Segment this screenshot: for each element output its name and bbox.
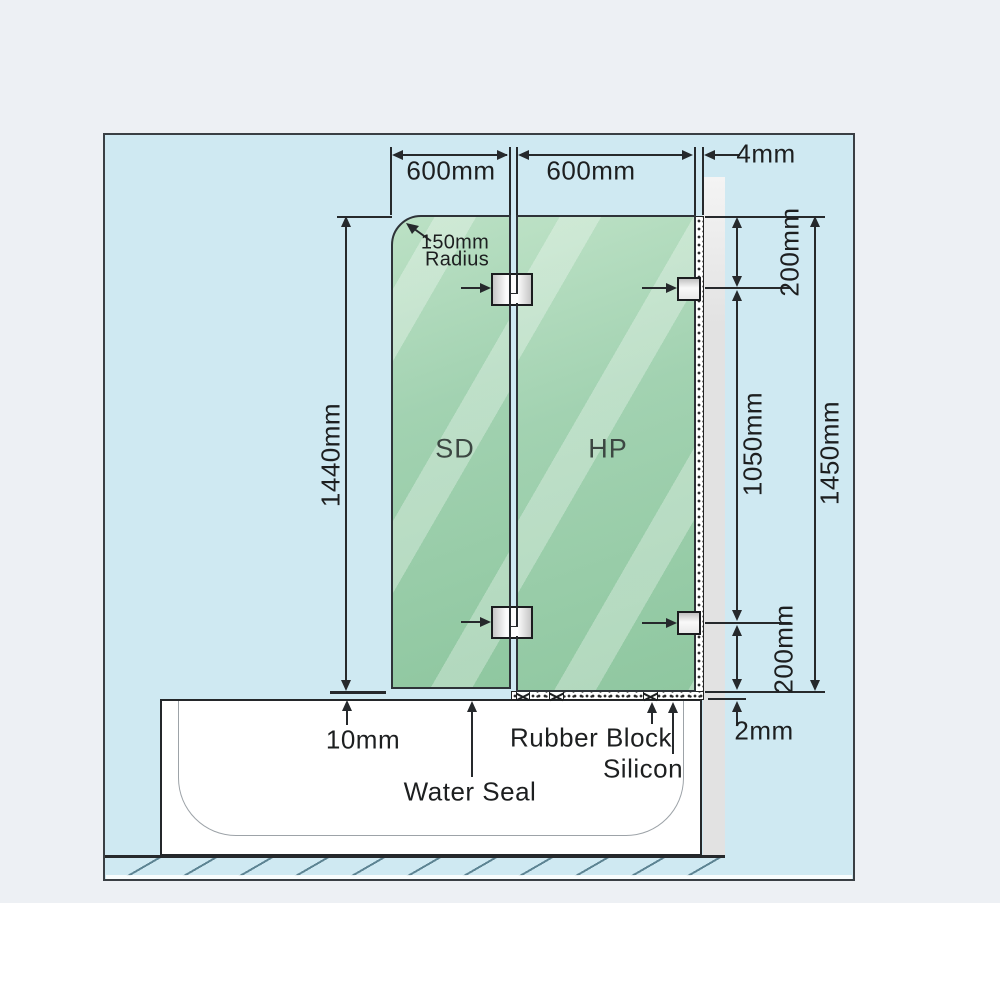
arrow-head xyxy=(732,679,742,690)
extension-line xyxy=(694,147,696,215)
arrow-head xyxy=(518,150,529,160)
label-silicon: Silicon xyxy=(603,754,683,785)
floor-skirt xyxy=(106,875,852,879)
arrow-head xyxy=(732,610,742,621)
arrow-head xyxy=(480,617,491,627)
dim-label-1450: 1450mm xyxy=(815,401,846,505)
arrow-head xyxy=(732,625,742,636)
label-water-seal: Water Seal xyxy=(404,777,537,808)
pointer-line xyxy=(672,711,674,754)
dim-line-200-top xyxy=(736,220,738,280)
wall xyxy=(703,177,725,856)
radius-word-label: Radius xyxy=(425,249,489,272)
dim-label-600-left: 600mm xyxy=(406,156,495,187)
arrow-head xyxy=(810,216,820,227)
panel-label-sd: SD xyxy=(435,434,475,465)
dim-label-10mm: 10mm xyxy=(326,725,400,756)
label-rubber-block: Rubber Block xyxy=(510,723,672,754)
arrow-head xyxy=(666,283,677,293)
arrow-head xyxy=(732,276,742,287)
arrow-head xyxy=(480,283,491,293)
arrow-head xyxy=(666,618,677,628)
hinge-notch xyxy=(511,626,518,636)
extension-line xyxy=(509,147,511,215)
hinge-notch xyxy=(511,293,518,303)
reference-line-top xyxy=(705,216,825,218)
hinge-top xyxy=(491,273,533,306)
arrow-head xyxy=(732,290,742,301)
dim-label-1050: 1050mm xyxy=(738,392,769,496)
hinge-bottom xyxy=(491,606,533,639)
dim-label-4mm: 4mm xyxy=(736,139,795,170)
arrow-head xyxy=(392,150,403,160)
silicon-strip-bottom xyxy=(511,691,704,700)
rubber-block-marker xyxy=(549,691,564,700)
dim-label-2mm: 2mm xyxy=(734,716,793,747)
reference-line-tub-top xyxy=(708,698,746,700)
pointer-line xyxy=(461,621,482,623)
tick-line xyxy=(330,691,386,694)
dim-label-200-bottom: 200mm xyxy=(769,604,800,693)
arrow-head xyxy=(732,217,742,228)
pointer-line xyxy=(346,709,348,725)
rubber-block-marker xyxy=(516,691,530,700)
arrow-head xyxy=(341,216,351,227)
pointer-line xyxy=(461,287,482,289)
shower-screen-diagram: SD HP 600mm 600mm 4mm 150mm Radius xyxy=(0,0,1000,1000)
dim-line-200-bottom xyxy=(736,628,738,684)
wall-bracket-bottom xyxy=(677,611,701,635)
dim-label-600-right: 600mm xyxy=(546,156,635,187)
panel-label-hp: HP xyxy=(588,434,628,465)
arrow-head xyxy=(810,680,820,691)
pointer-line xyxy=(642,622,667,624)
floor-hatch xyxy=(105,858,725,876)
dim-label-200-top: 200mm xyxy=(775,207,806,296)
rubber-block-marker xyxy=(643,691,658,700)
wall-bracket-top xyxy=(677,277,701,301)
arrow-head xyxy=(497,150,508,160)
dim-label-1440: 1440mm xyxy=(316,403,347,507)
arrow-head xyxy=(682,150,693,160)
arrow-head xyxy=(341,680,351,691)
reference-line-glass-bottom xyxy=(705,691,825,693)
pointer-line xyxy=(471,710,473,777)
pointer-line xyxy=(642,287,667,289)
